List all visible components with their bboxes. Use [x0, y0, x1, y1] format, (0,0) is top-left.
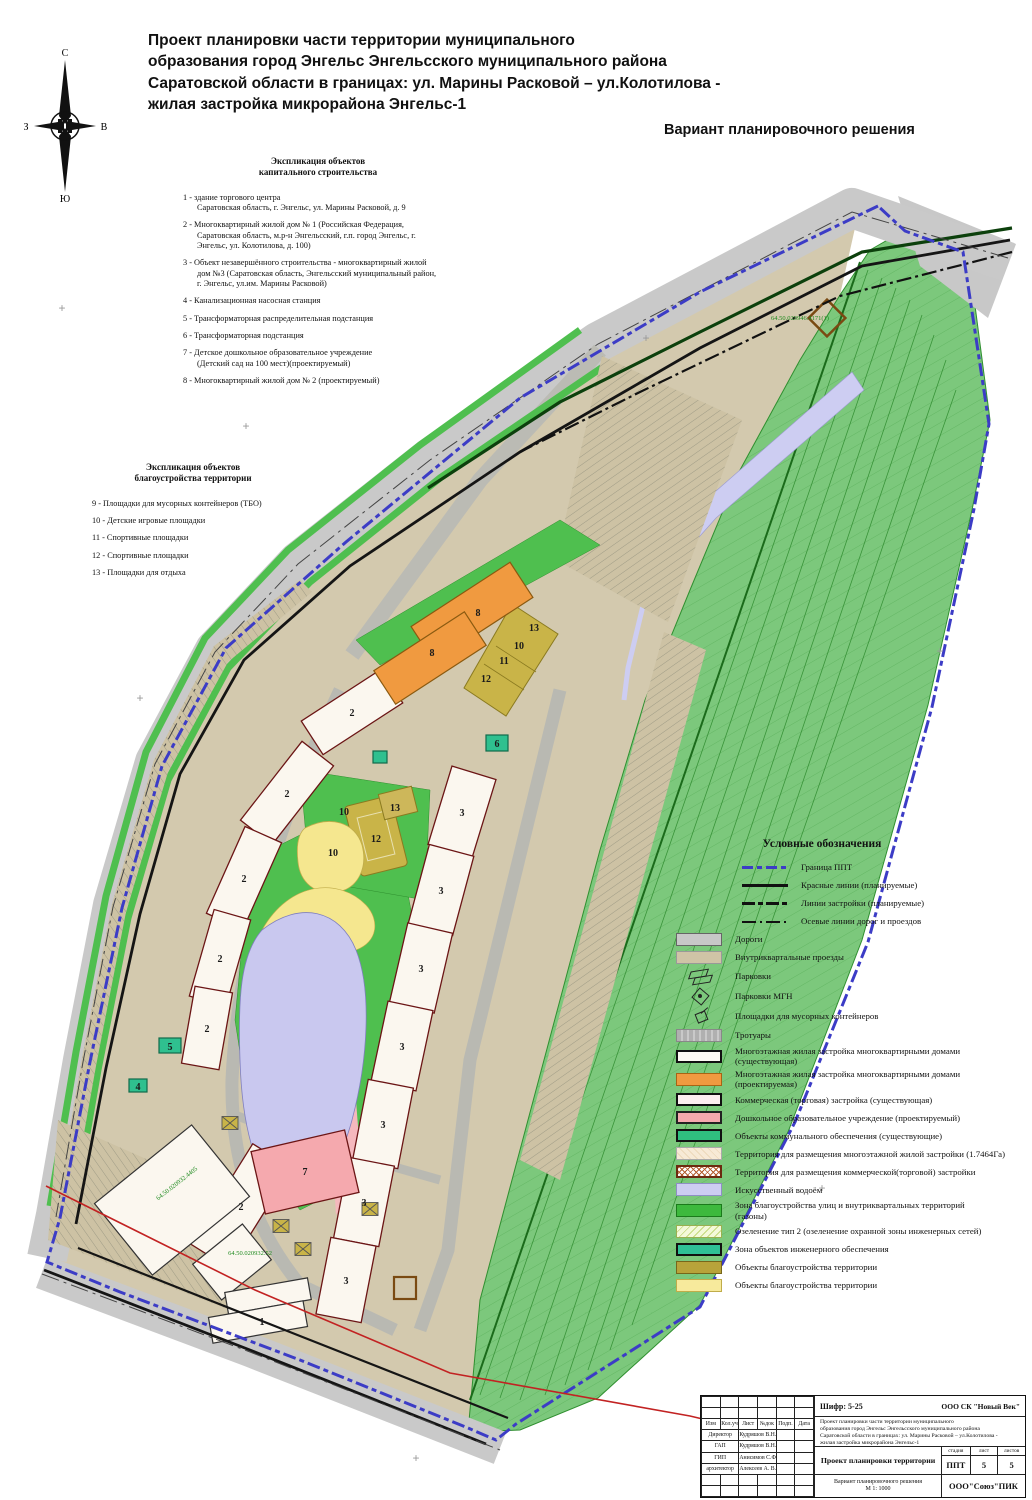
geodetic-cross-mark: + [242, 419, 249, 433]
plan-sheet: 12222223333333456788101112131010121364.5… [0, 0, 1032, 1500]
stamp-cell [702, 1397, 721, 1408]
legend-item-building-lines: Линии застройки (планируемые) [742, 896, 1028, 911]
stamp-header-cell: Дата [795, 1419, 814, 1430]
stamp-cell [795, 1408, 814, 1419]
legend-line-items: Граница ППТКрасные линии (планируемые)Ли… [676, 860, 1028, 929]
building-number-label: 12 [481, 674, 491, 685]
stamp-variant-cell: Вариант планировочного решения М 1: 1000 [815, 1475, 942, 1497]
building-number-label: 2 [350, 708, 355, 719]
building-number-label: 2 [205, 1024, 210, 1035]
building-number-label: 3 [439, 886, 444, 897]
compass-north-label: С [62, 48, 69, 59]
stamp-cell [720, 1397, 739, 1408]
legend-item-roads: Дороги [676, 932, 1028, 947]
stamp-cell [739, 1474, 758, 1485]
stamp-cell [795, 1452, 814, 1463]
building-number-label: 13 [390, 803, 400, 814]
explication-landscaping-item: 10 - Детские игровые площадки [92, 516, 392, 526]
legend-item-residential-planned: Многоэтажная жилая застройка многокварти… [676, 1069, 1028, 1089]
stamp-sheet-label: лист [970, 1447, 998, 1456]
legend-swatch [676, 951, 722, 964]
stamp-cell [757, 1485, 776, 1496]
stamp-sheets-label: листов [997, 1447, 1025, 1456]
explication-landscaping-heading: Экспликация объектов благоустройства тер… [108, 462, 278, 485]
stamp-sheet-value: 5 [970, 1456, 998, 1474]
explication-capital-list: 1 - здание торгового центра Саратовская … [183, 193, 493, 387]
explication-capital-item: 3 - Объект незавершённого строительства … [183, 258, 493, 289]
explication-landscaping-item: 12 - Спортивные площадки [92, 551, 392, 561]
geodetic-cross-mark: + [642, 331, 649, 345]
legend-swatch [676, 1279, 722, 1292]
legend-swatch [676, 1225, 722, 1238]
stamp-cell [795, 1485, 814, 1496]
legend-heading: Условные обозначения [702, 838, 942, 850]
stamp-cell [757, 1397, 776, 1408]
legend-item-inner-drives: Внутриквартальные проезды [676, 950, 1028, 965]
stamp-cell [776, 1474, 795, 1485]
page-title: Проект планировки части территории муниц… [148, 30, 788, 116]
explication-capital-item: 2 - Многоквартирный жилой дом № 1 (Росси… [183, 220, 493, 251]
explication-capital-heading: Экспликация объектов капитального строит… [213, 156, 423, 179]
stamp-cell [776, 1408, 795, 1419]
building-number-label: 3 [344, 1276, 349, 1287]
geodetic-cross-mark: + [936, 644, 943, 658]
stamp-name-cell: Алексеев А. В. [739, 1463, 776, 1474]
building-number-label: 3 [381, 1120, 386, 1131]
stamp-cell [702, 1408, 721, 1419]
compass-east-label: В [101, 122, 108, 133]
building-number-label: 6 [495, 739, 500, 750]
legend-item-landscaping-objects-olive: Объекты благоустройства территории [676, 1260, 1028, 1275]
legend-label: Территория для размещения многоэтажной ж… [735, 1149, 1005, 1159]
variant-subtitle: Вариант планировочного решения [664, 122, 964, 138]
legend-label: Парковки [735, 971, 771, 981]
explication-capital-item: 6 - Трансформаторная подстанция [183, 331, 493, 341]
stamp-stage-label: стадия [942, 1447, 970, 1456]
trash-pad-icon [676, 1008, 722, 1025]
stamp-project-description: Проект планировки части территории муниц… [815, 1417, 1025, 1447]
legend-item-greenery-type2: Озеленение тип 2 (озеленение охранной зо… [676, 1224, 1028, 1239]
building-number-label: 8 [476, 608, 481, 619]
explication-landscaping: Экспликация объектов благоустройства тер… [92, 462, 392, 585]
legend-swatch [676, 1129, 722, 1142]
cadastral-number-label: 64.50.020932.52 [228, 1250, 272, 1257]
building-number-label: 2 [239, 1202, 244, 1213]
legend-swatch [676, 1111, 722, 1124]
compass-rose-icon: С Ю З В [20, 46, 110, 202]
legend-swatch [676, 1261, 722, 1274]
legend-item-lawns: Зона благоустройства улиц и внутрикварта… [676, 1200, 1028, 1220]
legend-swatch [742, 866, 788, 869]
compass-south-label: Ю [60, 194, 70, 202]
legend-label: Объекты коммунального обеспечения (сущес… [735, 1131, 942, 1141]
stamp-header-cell: Подп. [776, 1419, 795, 1430]
legend-label: Озеленение тип 2 (озеленение охранной зо… [735, 1226, 981, 1236]
legend-swatch [742, 884, 788, 887]
stamp-header-cell: №док [757, 1419, 776, 1430]
explication-capital-item: 4 - Канализационная насосная станция [183, 296, 493, 306]
stamp-signatures-table: ИзмКол.учЛист№докПодп.ДатаДиректорКудряш… [701, 1396, 814, 1497]
explication-landscaping-list: 9 - Площадки для мусорных контейнеров (Т… [92, 499, 392, 579]
legend-label: Дороги [735, 934, 763, 944]
stamp-cell [776, 1452, 795, 1463]
stamp-cell [739, 1485, 758, 1496]
stamp-sheets-value: 5 [997, 1456, 1025, 1474]
building-number-label: 12 [371, 834, 381, 845]
geodetic-cross-mark: + [412, 1451, 419, 1465]
stamp-role-cell: Директор [702, 1430, 739, 1441]
stamp-cell [776, 1441, 795, 1452]
stamp-name-cell: Анисимов С.Ф [739, 1452, 776, 1463]
explication-capital-item: 5 - Трансформаторная распределительная п… [183, 314, 493, 324]
building-number-label: 3 [400, 1042, 405, 1053]
building-number-label: 2 [242, 874, 247, 885]
stamp-cell [795, 1474, 814, 1485]
stamp-cell [776, 1485, 795, 1496]
legend-item-engineering-zone: Зона объектов инженерного обеспечения [676, 1242, 1028, 1257]
geodetic-cross-mark: + [58, 301, 65, 315]
stamp-cell [702, 1485, 721, 1496]
stamp-cell [795, 1463, 814, 1474]
legend-label: Парковки МГН [735, 991, 792, 1001]
legend-swatch [742, 921, 788, 923]
stamp-header-cell: Изм [702, 1419, 721, 1430]
stamp-role-cell: ГИП [702, 1452, 739, 1463]
legend-label: Зона благоустройства улиц и внутрикварта… [735, 1200, 965, 1220]
legend-swatch [676, 1029, 722, 1042]
legend-label: Многоэтажная жилая застройка многокварти… [735, 1069, 960, 1089]
stamp-name-cell: Кудряшов В.Н. [739, 1430, 776, 1441]
stamp-cell [795, 1430, 814, 1441]
legend-swatch [676, 1165, 722, 1178]
mgn-parking-icon [676, 988, 722, 1005]
legend-item-red-lines: Красные линии (планируемые) [742, 878, 1028, 893]
stamp-cell [720, 1408, 739, 1419]
legend-item-landscaping-objects-yellow: Объекты благоустройства территории [676, 1278, 1028, 1293]
legend-item-parkings-mgn: Парковки МГН [676, 988, 1028, 1005]
cadastral-number-label: 64.50.020946.4171(1) [771, 315, 829, 322]
stamp-cell [776, 1463, 795, 1474]
map-legend: Условные обозначения Граница ППТКрасные … [676, 838, 1028, 1296]
building-number-label: 3 [460, 808, 465, 819]
stamp-cell [702, 1474, 721, 1485]
stamp-cell [757, 1474, 776, 1485]
legend-swatch [676, 933, 722, 946]
legend-label: Внутриквартальные проезды [735, 952, 844, 962]
explication-capital-item: 7 - Детское дошкольное образовательное у… [183, 348, 493, 369]
building-number-label: 4 [136, 1082, 141, 1093]
legend-item-residential-existing: Многоэтажная жилая застройка многокварти… [676, 1046, 1028, 1066]
building-number-label: 1 [260, 1317, 265, 1328]
title-block-stamp: ИзмКол.учЛист№докПодп.ДатаДиректорКудряш… [700, 1395, 1026, 1498]
stamp-role-cell: архитектор [702, 1463, 739, 1474]
stamp-stage-grid: стадия лист листов ППТ 5 5 [942, 1447, 1025, 1474]
legend-item-axis-lines: Осевые линии дорог и проездов [742, 914, 1028, 929]
legend-swatch [676, 1147, 722, 1160]
building-number-label: 2 [285, 789, 290, 800]
legend-item-trash-pads: Площадки для мусорных контейнеров [676, 1008, 1028, 1025]
building-number-label: 3 [419, 964, 424, 975]
explication-landscaping-item: 13 - Площадки для отдыха [92, 568, 392, 578]
stamp-cell [795, 1397, 814, 1408]
stamp-role-cell: ГАП [702, 1441, 739, 1452]
building-number-label: 2 [218, 954, 223, 965]
parking-icon [676, 968, 722, 985]
legend-item-artificial-pond: Искусственный водоём [676, 1182, 1028, 1197]
compass-west-label: З [23, 122, 28, 133]
building-number-label: 8 [430, 648, 435, 659]
stamp-cell [776, 1397, 795, 1408]
legend-area-items: ДорогиВнутриквартальные проездыПарковкиП… [676, 932, 1028, 1293]
stamp-company-top: ООО СК "Новый Век" [941, 1402, 1020, 1411]
legend-label: Зона объектов инженерного обеспечения [735, 1244, 889, 1254]
legend-label: Линии застройки (планируемые) [801, 898, 924, 908]
stamp-cell [739, 1408, 758, 1419]
stamp-cell [739, 1397, 758, 1408]
stamp-cell [720, 1474, 739, 1485]
geodetic-cross-mark: + [136, 691, 143, 705]
building-number-label: 10 [339, 807, 349, 818]
legend-label: Многоэтажная жилая застройка многокварти… [735, 1046, 960, 1066]
legend-item-parkings: Парковки [676, 968, 1028, 985]
stamp-header-cell: Лист [739, 1419, 758, 1430]
legend-item-territory-commercial: Территория для размещения коммерческой(т… [676, 1164, 1028, 1179]
stamp-cipher: Шифр: 5-25 [820, 1402, 863, 1411]
building-number-label: 5 [168, 1042, 173, 1053]
legend-swatch [676, 1243, 722, 1256]
legend-item-sidewalks: Тротуары [676, 1028, 1028, 1043]
legend-swatch [676, 1183, 722, 1196]
explication-landscaping-item: 11 - Спортивные площадки [92, 533, 392, 543]
stamp-document-title: Проект планировки территории [815, 1447, 942, 1474]
stamp-stage-value: ППТ [942, 1456, 970, 1474]
legend-swatch [676, 1050, 722, 1063]
legend-label: Объекты благоустройства территории [735, 1262, 877, 1272]
legend-label: Граница ППТ [801, 862, 852, 872]
legend-label: Дошкольное образовательное учреждение (п… [735, 1113, 960, 1123]
stamp-scale: М 1: 1000 [865, 1486, 890, 1494]
legend-label: Территория для размещения коммерческой(т… [735, 1167, 975, 1177]
stamp-cell [795, 1441, 814, 1452]
stamp-variant-title: Вариант планировочного решения [834, 1479, 922, 1487]
legend-item-utility-objects: Объекты коммунального обеспечения (сущес… [676, 1128, 1028, 1143]
legend-label: Красные линии (планируемые) [801, 880, 917, 890]
building-number-label: 3 [362, 1198, 367, 1209]
stamp-cell [757, 1408, 776, 1419]
legend-label: Объекты благоустройства территории [735, 1280, 877, 1290]
building-number-label: 11 [499, 656, 508, 667]
explication-capital-construction: Экспликация объектов капитального строит… [183, 156, 493, 394]
legend-label: Искусственный водоём [735, 1185, 822, 1195]
building-number-label: 7 [303, 1167, 308, 1178]
explication-landscaping-item: 9 - Площадки для мусорных контейнеров (Т… [92, 499, 392, 509]
stamp-header-cell: Кол.уч [720, 1419, 739, 1430]
explication-capital-item: 1 - здание торгового центра Саратовская … [183, 193, 493, 214]
legend-swatch [676, 1073, 722, 1086]
stamp-company-bottom: ООО"Союз"ПИК [942, 1475, 1025, 1497]
building-number-label: 10 [328, 848, 338, 859]
legend-label: Тротуары [735, 1030, 771, 1040]
legend-item-commercial-existing: Коммерческая (торговая) застройка (сущес… [676, 1092, 1028, 1107]
legend-label: Площадки для мусорных контейнеров [735, 1011, 878, 1021]
stamp-cell [776, 1430, 795, 1441]
legend-item-ppt-boundary: Граница ППТ [742, 860, 1028, 875]
legend-label: Коммерческая (торговая) застройка (сущес… [735, 1095, 932, 1105]
legend-swatch [676, 1093, 722, 1106]
stamp-cell [720, 1485, 739, 1496]
legend-swatch [742, 902, 788, 905]
building-number-label: 13 [529, 623, 539, 634]
explication-capital-item: 8 - Многоквартирный жилой дом № 2 (проек… [183, 376, 493, 386]
legend-label: Осевые линии дорог и проездов [801, 916, 921, 926]
building-number-label: 10 [514, 641, 524, 652]
legend-swatch [676, 1204, 722, 1217]
stamp-name-cell: Кудряшов В.Н. [739, 1441, 776, 1452]
legend-item-preschool-planned: Дошкольное образовательное учреждение (п… [676, 1110, 1028, 1125]
legend-item-territory-residential: Территория для размещения многоэтажной ж… [676, 1146, 1028, 1161]
